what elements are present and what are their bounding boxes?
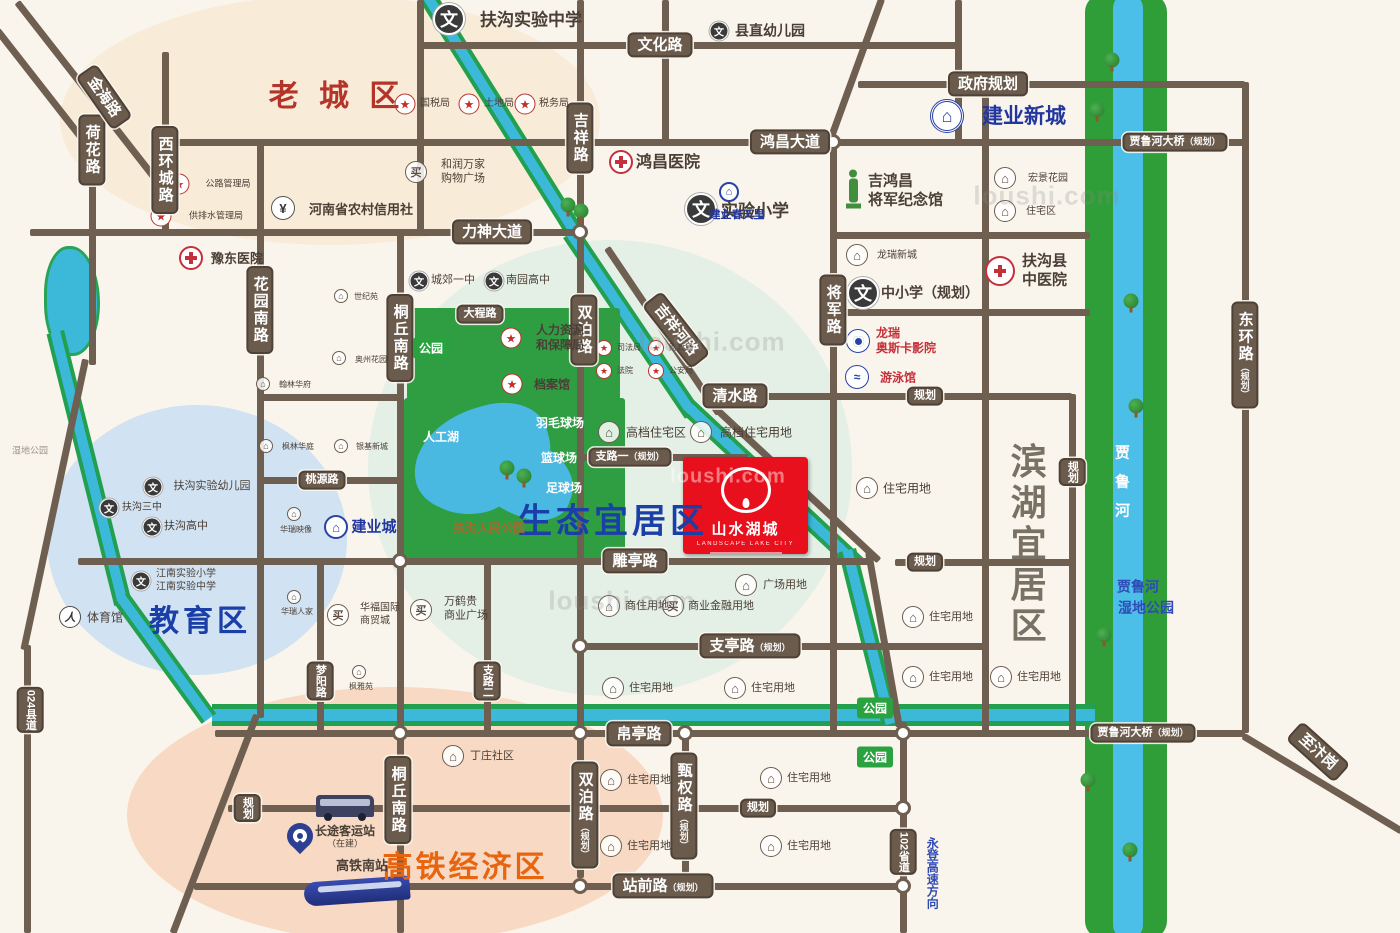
landmark-label: 住宅用地 — [883, 482, 931, 497]
road-junction — [572, 725, 588, 741]
map-text: 高铁经济区 — [383, 850, 548, 886]
landmark-label: 华福国际商贸城 — [360, 603, 400, 628]
landmark-label: 人力资源和保障局 — [536, 323, 584, 353]
road — [833, 232, 1090, 239]
road-label: 102省道 — [890, 829, 917, 875]
road-label-text: 贾鲁河大桥 — [1129, 136, 1184, 148]
road — [718, 393, 1072, 400]
road-label-text: 站前路 — [622, 877, 667, 894]
road-label-text: 梦阳路 — [314, 665, 326, 698]
road — [833, 309, 1090, 316]
landmark-label: 住宅用地 — [929, 671, 973, 685]
residence-icon: ⌂ — [598, 421, 620, 443]
gov-star-icon: ★ — [501, 328, 522, 349]
school-icon: 文 — [143, 518, 162, 537]
residence-icon: ⌂ — [287, 590, 301, 604]
map-text: （在建） — [327, 839, 363, 850]
map-text: 永登高速方向 — [925, 837, 939, 909]
road-label: 帛亭路 — [606, 721, 671, 746]
location-map: 荷花路金海路西环城路文化路吉祥路鸿昌大道政府规划贾鲁河大桥（规划）力神大道花园南… — [0, 0, 1400, 933]
road — [830, 140, 837, 733]
tree-icon — [517, 469, 532, 488]
landmark-label: 高档住宅用地 — [720, 426, 792, 441]
road-label-text: 支亭路 — [709, 637, 754, 654]
landmark-label: 游泳馆 — [880, 371, 916, 386]
landmark-label: 建业春天里 — [710, 209, 765, 223]
road-junction — [392, 725, 408, 741]
bus-station-icon — [316, 795, 374, 817]
landmark-label: 扶沟实验幼儿园 — [174, 480, 251, 494]
road-label-text: 鸿昌大道 — [760, 133, 820, 150]
landmark-label: 扶沟县中医院 — [1022, 252, 1067, 290]
road-label: 雕亭路 — [602, 548, 667, 573]
landmark-label: 高档住宅区 — [626, 426, 686, 441]
residence-icon: ⌂ — [856, 477, 878, 499]
project-tagline — [710, 552, 782, 554]
road-label: 支亭路（规划） — [699, 633, 800, 658]
map-text: 篮球场 — [541, 451, 577, 465]
road-label-sub: （规划） — [628, 452, 664, 462]
gov-star-icon: ★ — [648, 363, 664, 379]
landmark-label: 国税局 — [420, 98, 450, 111]
tree-icon — [1123, 843, 1138, 862]
watermark: loushi.com — [638, 327, 785, 358]
jianye-icon: ⌂ — [719, 182, 739, 202]
road-label: 大程路 — [457, 305, 504, 324]
map-text: 贾鲁河 — [1112, 445, 1130, 532]
road-label-text: 帛亭路 — [616, 725, 661, 742]
residence-icon: ⌂ — [287, 507, 301, 521]
landmark-label: 河南省农村信用社 — [309, 202, 413, 218]
landmark-label: 枫林华庭 — [282, 442, 314, 452]
road — [194, 883, 903, 890]
residence-icon: ⌂ — [735, 574, 757, 596]
road-label-text: 荷花路 — [84, 125, 101, 176]
road — [78, 558, 870, 565]
landmark-label: 法院 — [617, 366, 633, 376]
landmark-label: 中小学（规划） — [881, 284, 979, 302]
shopping-icon: 买 — [410, 599, 432, 621]
landmark-label: 江南实验小学江南实验中学 — [156, 569, 216, 594]
road-label: 花园南路 — [246, 266, 273, 354]
hospital-cross-icon — [179, 246, 203, 270]
tree-icon — [1105, 53, 1120, 72]
road-label: 梦阳路 — [307, 662, 334, 701]
road-junction — [572, 224, 588, 240]
road-label: 规划 — [234, 794, 261, 822]
school-icon: 文 — [433, 3, 465, 35]
map-text: 长途客运站 — [315, 824, 375, 838]
road-label-text: 大程路 — [464, 308, 497, 320]
road-label-sub: （规划） — [679, 814, 689, 850]
road-junction — [392, 553, 408, 569]
road-label-text: 雕亭路 — [612, 552, 657, 569]
residence-icon: ⌂ — [600, 769, 622, 791]
landmark-label: 奥州花园 — [355, 355, 387, 365]
road-junction — [572, 878, 588, 894]
landmark-label: 住宅用地 — [929, 611, 973, 625]
landmark-label: 扶沟实验中学 — [480, 9, 582, 30]
road-label: 吉祥路 — [566, 103, 593, 174]
road-label: 荷花路 — [78, 115, 105, 186]
road-label-sub: （规划） — [1240, 363, 1250, 399]
road-label-sub: （规划） — [580, 823, 590, 859]
landmark-label: 龙瑞奥斯卡影院 — [876, 326, 936, 356]
gov-star-icon: ★ — [502, 374, 523, 395]
road-label-text: 力神大道 — [462, 223, 522, 240]
gov-star-icon: ★ — [596, 340, 612, 356]
cinema-icon — [846, 329, 870, 353]
residence-icon: ⌂ — [846, 244, 868, 266]
map-text: 高铁南站 — [336, 858, 388, 874]
road-label-text: 贾鲁河大桥 — [1097, 727, 1152, 739]
landmark-label: 华瑞映像 — [280, 525, 312, 535]
road-label: 清水路 — [702, 383, 767, 408]
road-label-text: 规划 — [914, 556, 936, 568]
landmark-label: 南园高中 — [506, 274, 550, 288]
residence-icon: ⌂ — [902, 666, 924, 688]
landmark-label: 土地局 — [484, 98, 514, 111]
school-icon: 文 — [847, 277, 879, 309]
landmark-label: 住宅用地 — [787, 840, 831, 854]
road-label-sub: （规划） — [1184, 137, 1220, 147]
road-label: 将军路 — [819, 275, 846, 346]
residence-icon: ⌂ — [602, 677, 624, 699]
landmark-label: 住宅用地 — [629, 682, 673, 696]
landmark-label: 广场用地 — [763, 579, 807, 593]
tree-icon — [1090, 103, 1105, 122]
road-label: 支路二 — [474, 662, 501, 701]
road-label-text: 双泊路 — [577, 772, 594, 823]
road-label-text: 规划 — [914, 390, 936, 402]
landmark-label: 扶沟高中 — [164, 520, 208, 534]
road-label: 贾鲁河大桥（规划） — [1122, 133, 1227, 152]
school-icon: 文 — [710, 22, 729, 41]
watermark: loushi.com — [670, 466, 786, 489]
road-label-text: 支路一 — [595, 451, 628, 463]
road-label-text: 甄权路 — [676, 763, 693, 814]
landmark-label: 建业新城 — [982, 104, 1066, 130]
residence-icon: ⌂ — [334, 439, 348, 453]
landmark-label: 扶沟三中 — [122, 502, 162, 515]
road — [827, 0, 885, 141]
landmark-label: 翰林华府 — [279, 380, 311, 390]
tree-icon — [1124, 294, 1139, 313]
road — [257, 140, 264, 718]
road-label-text: 支路二 — [481, 665, 493, 698]
tree-icon — [1129, 399, 1144, 418]
road-junction — [895, 878, 911, 894]
tree-icon — [574, 204, 589, 223]
road-label: 024县道 — [17, 687, 44, 733]
residence-icon: ⌂ — [600, 835, 622, 857]
landmark-label: 住宅用地 — [787, 772, 831, 786]
road-label: 规划 — [740, 799, 776, 818]
park-label: 公园 — [857, 698, 893, 719]
landmark-label: 公路管理局 — [205, 178, 250, 189]
landmark-label: 税务局 — [539, 98, 569, 111]
road-label: 站前路（规划） — [612, 873, 713, 898]
road-label: 力神大道 — [452, 219, 532, 244]
road — [662, 0, 669, 142]
hospital-cross-icon — [609, 150, 633, 174]
shopping-icon: 买 — [327, 604, 349, 626]
road-label-sub: （规划） — [668, 882, 704, 892]
road-label: 规划 — [1059, 458, 1086, 486]
road-label: 鸿昌大道 — [750, 129, 830, 154]
road-label-text: 规划 — [241, 797, 253, 819]
road-label-text: 桃源路 — [306, 474, 339, 486]
road-label-text: 政府规划 — [958, 75, 1018, 92]
landmark-label: 银基新城 — [356, 442, 388, 452]
landmark-label: 公安局 — [669, 366, 693, 376]
landmark-label: 枫雅苑 — [349, 682, 373, 692]
landmark-label: 体育馆 — [87, 611, 123, 626]
road-label-text: 文化路 — [637, 36, 682, 53]
residence-icon: ⌂ — [690, 421, 712, 443]
road-junction — [895, 800, 911, 816]
jianye-icon: ⌂ — [324, 515, 348, 539]
location-pin-icon — [287, 823, 313, 852]
road-junction — [895, 725, 911, 741]
tree-icon — [1081, 773, 1096, 792]
gov-star-icon: ★ — [596, 363, 612, 379]
watermark: loushi.com — [973, 181, 1120, 212]
road-label: 文化路 — [627, 32, 692, 57]
residence-icon: ⌂ — [724, 677, 746, 699]
landmark-label: 商业金融用地 — [688, 600, 754, 614]
road-label-text: 吉祥路 — [572, 113, 589, 164]
residence-icon: ⌂ — [902, 606, 924, 628]
landmark-label: 世纪苑 — [354, 292, 378, 302]
park-label: 公园 — [413, 338, 449, 359]
jianye-icon: ⌂ — [930, 99, 964, 133]
project-name: 山水湖城 — [711, 518, 779, 539]
road-label-text: 桐丘南路 — [390, 766, 407, 834]
road-label: 规划 — [907, 387, 943, 406]
map-text: 扶沟人民公园 — [453, 521, 525, 535]
landmark-label: 住宅用地 — [751, 682, 795, 696]
tree-icon — [500, 461, 515, 480]
road — [165, 139, 1245, 146]
school-icon: 文 — [410, 272, 429, 291]
landmark-label: 档案馆 — [534, 378, 570, 393]
road-label: 桐丘南路 — [384, 756, 411, 844]
road-label: 桃源路 — [299, 471, 346, 490]
statue-icon — [845, 170, 861, 209]
road-label-text: 清水路 — [712, 387, 757, 404]
road — [260, 394, 400, 401]
map-text: 老 城 区 — [269, 79, 406, 115]
landmark-label: 吉鸿昌将军纪念馆 — [868, 172, 943, 210]
residence-icon: ⌂ — [352, 665, 366, 679]
artificial-lake — [428, 468, 510, 514]
school-icon: 文 — [132, 572, 151, 591]
road-label-sub: （规划） — [755, 642, 791, 652]
landmark-label: 万鹤贵商业广场 — [444, 595, 488, 623]
school-icon: 文 — [100, 499, 119, 518]
residence-icon: ⌂ — [990, 666, 1012, 688]
road-label-text: 东环路 — [1237, 312, 1254, 363]
school-icon: 文 — [144, 478, 163, 497]
swimming-icon: ≈ — [845, 365, 869, 389]
road-label: 支路一（规划） — [588, 448, 671, 467]
map-text: 教育区 — [149, 604, 251, 640]
road-label-text: 花园南路 — [252, 276, 269, 344]
map-text: 湿地公园 — [1118, 600, 1174, 617]
landmark-label: 鸿昌医院 — [636, 153, 700, 173]
road-label: 桐丘南路 — [386, 294, 413, 382]
watermark: loushi.com — [548, 586, 695, 617]
gov-star-icon: ★ — [459, 94, 480, 115]
landmark-label: 和润万家购物广场 — [441, 158, 485, 186]
map-text: 羽毛球场 — [536, 416, 584, 430]
map-text: 人工湖 — [423, 430, 459, 444]
road — [317, 561, 324, 733]
road-label-text: 规划 — [1066, 461, 1078, 483]
road — [900, 722, 907, 933]
map-text: 足球场 — [546, 481, 582, 495]
map-text: 生态宜居区 — [518, 502, 708, 543]
road-label: 贾鲁河大桥（规划） — [1090, 724, 1195, 743]
landmark-label: 建业城 — [351, 519, 396, 538]
tree-icon — [1097, 628, 1112, 647]
landmark-label: 丁庄社区 — [470, 750, 514, 764]
school-icon: 文 — [485, 272, 504, 291]
residence-icon: ⌂ — [760, 767, 782, 789]
residence-icon: ⌂ — [442, 745, 464, 767]
road — [484, 561, 491, 733]
road — [417, 0, 424, 232]
road-label-text: 将军路 — [825, 285, 842, 336]
stadium-icon: 人 — [59, 606, 81, 628]
map-text: 贾鲁河 — [1117, 579, 1159, 596]
landmark-label: 豫东医院 — [211, 251, 263, 267]
landmark-label: 华瑞人家 — [281, 607, 313, 617]
residence-icon: ⌂ — [760, 835, 782, 857]
gov-star-icon: ★ — [515, 94, 536, 115]
road-label-text: 桐丘南路 — [392, 304, 409, 372]
residence-icon: ⌂ — [332, 351, 346, 365]
landmark-label: 住宅用地 — [627, 774, 671, 788]
road-label-text: 102省道 — [897, 832, 909, 872]
road — [1069, 394, 1076, 733]
residence-icon: ⌂ — [334, 289, 348, 303]
road-label: 政府规划 — [948, 71, 1028, 96]
landmark-label: 龙瑞新城 — [877, 250, 917, 263]
road-label-text: 024县道 — [24, 690, 36, 730]
road-label-text: 规划 — [747, 802, 769, 814]
road-label: 西环城路 — [151, 126, 178, 214]
project-name-en: LANDSCAPE LAKE CITY — [697, 541, 794, 547]
road-label: 甄权路（规划） — [670, 753, 697, 860]
road-label: 双泊路（规划） — [571, 762, 598, 869]
road-junction — [572, 638, 588, 654]
map-text: 滨湖宜居区 — [1004, 443, 1047, 648]
road-label: 至汴岗 — [1285, 721, 1350, 783]
shopping-icon: 买 — [405, 161, 427, 183]
road-label-text: 西环城路 — [157, 136, 174, 204]
landmark-label: 城郊一中 — [431, 274, 475, 288]
landmark-label: 住宅用地 — [1017, 671, 1061, 685]
landmark-label: 供排水管理局 — [189, 210, 243, 221]
road-junction — [677, 725, 693, 741]
park-label: 公园 — [857, 747, 893, 768]
bank-icon: ¥ — [271, 196, 295, 220]
road-label: 规划 — [907, 553, 943, 572]
residence-icon: ⌂ — [256, 377, 270, 391]
hospital-cross-icon — [985, 256, 1015, 286]
residence-icon: ⌂ — [259, 439, 273, 453]
map-text: 湿地公园 — [12, 446, 48, 457]
road-label-sub: （规划） — [1152, 728, 1188, 738]
road — [858, 81, 1245, 88]
road-label: 东环路（规划） — [1231, 302, 1258, 409]
landmark-label: 住宅用地 — [627, 840, 671, 854]
landmark-label: 县直幼儿园 — [735, 22, 805, 40]
